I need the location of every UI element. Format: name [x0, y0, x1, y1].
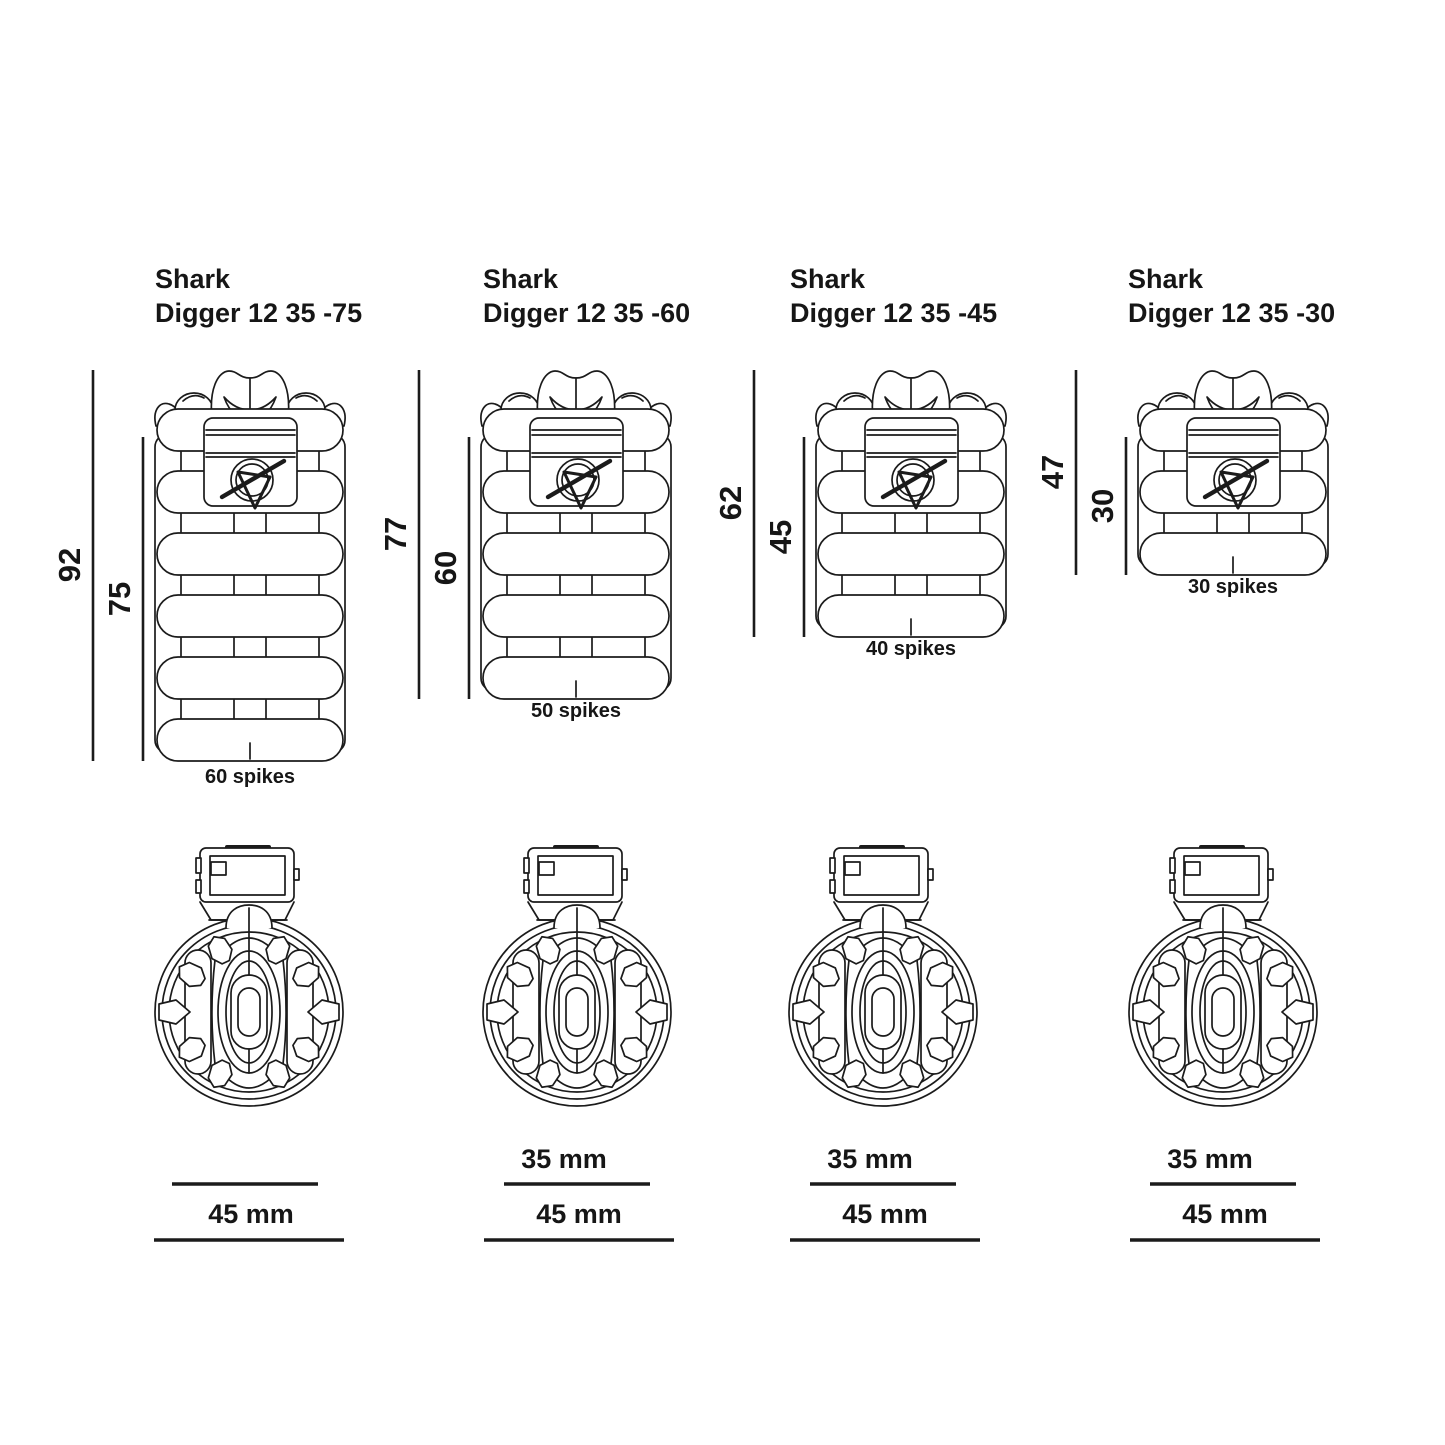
product-4-cage-dim: 30 [1085, 489, 1120, 523]
product-3-side-view [816, 371, 1006, 637]
product-1-title-line2: Digger 12 35 -75 [155, 298, 362, 328]
product-2-front-view [483, 845, 671, 1106]
product-1-front-view [155, 845, 343, 1106]
product-4-side-view [1138, 371, 1328, 575]
product-2-spikes-label: 50 spikes [531, 700, 621, 722]
diagram-canvas: Shark Digger 12 35 -75 92 75 60 spikes 4… [0, 0, 1445, 1445]
product-4-front-view [1129, 845, 1317, 1106]
product-2-overall-dim: 77 [378, 517, 413, 551]
product-1-title-line1: Shark [155, 264, 231, 294]
diagram-page: Shark Digger 12 35 -75 92 75 60 spikes 4… [0, 0, 1445, 1445]
product-3-title-line1: Shark [790, 264, 866, 294]
product-4-overall-dim: 47 [1035, 455, 1070, 489]
product-4-title-line1: Shark [1128, 264, 1204, 294]
product-2-title-line2: Digger 12 35 -60 [483, 298, 690, 328]
product-2-cage-dim: 60 [428, 551, 463, 585]
product-4-column: Shark Digger 12 35 -30 47 30 30 spikes 3… [1035, 264, 1335, 1240]
product-3-cage-dim: 45 [763, 520, 798, 554]
product-1-cage-dim: 75 [102, 582, 137, 616]
product-2-inner-dia-label: 35 mm [521, 1144, 607, 1174]
product-2-side-view [481, 371, 671, 699]
product-3-title-line2: Digger 12 35 -45 [790, 298, 997, 328]
product-2-outer-dia-label: 45 mm [536, 1199, 622, 1229]
product-4-title-line2: Digger 12 35 -30 [1128, 298, 1335, 328]
product-1-outer-dia-label: 45 mm [208, 1199, 294, 1229]
product-3-outer-dia-label: 45 mm [842, 1199, 928, 1229]
product-3-overall-dim: 62 [713, 486, 748, 520]
product-4-outer-dia-label: 45 mm [1182, 1199, 1268, 1229]
product-4-spikes-label: 30 spikes [1188, 576, 1278, 598]
product-4-inner-dia-label: 35 mm [1167, 1144, 1253, 1174]
product-3-spikes-label: 40 spikes [866, 638, 956, 660]
product-1-side-view [155, 371, 345, 761]
product-3-front-view [789, 845, 977, 1106]
product-1-spikes-label: 60 spikes [205, 766, 295, 788]
product-1-column: Shark Digger 12 35 -75 92 75 60 spikes 4… [52, 264, 362, 1240]
product-3-column: Shark Digger 12 35 -45 62 45 40 spikes 3… [713, 264, 1006, 1240]
product-3-inner-dia-label: 35 mm [827, 1144, 913, 1174]
product-2-column: Shark Digger 12 35 -60 77 60 50 spikes 3… [378, 264, 690, 1240]
product-1-overall-dim: 92 [52, 548, 87, 582]
product-2-title-line1: Shark [483, 264, 559, 294]
